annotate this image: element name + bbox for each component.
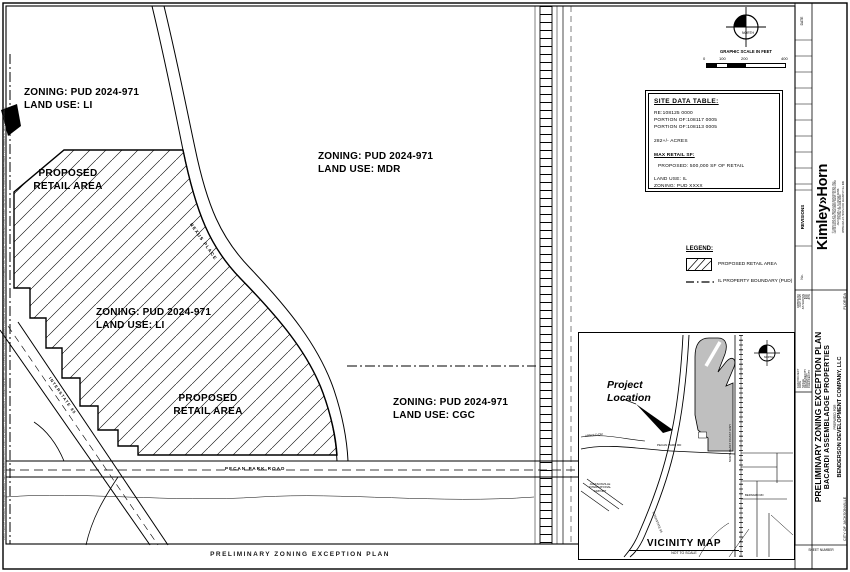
landuse-line: LAND USE: LI xyxy=(96,319,211,332)
max-retail-heading: MAX RETAIL SF: xyxy=(654,152,774,159)
sheet-number-label: SHEET NUMBER xyxy=(808,548,833,552)
project-location-line1: Project xyxy=(607,379,651,392)
city-label: CITY OF JACKSONVILLE xyxy=(843,497,847,541)
revisions-date-header: DATE xyxy=(800,6,804,36)
landuse-line: LAND USE: LI xyxy=(24,99,139,112)
zoning-label-li: ZONING: PUD 2024-971 LAND USE: LI xyxy=(96,306,211,332)
state-label: FLORIDA xyxy=(843,293,847,309)
retail-area-label-lower: PROPOSED RETAIL AREA xyxy=(158,392,258,418)
sheet-title: PRELIMINARY ZONING EXCEPTION PLAN xyxy=(813,293,823,541)
parcel-id: PORTION OF:108117 0005 xyxy=(654,117,774,124)
scale-tick-200: 200 xyxy=(741,56,748,61)
vicinity-road-bernard: BERNARD RD xyxy=(745,493,764,497)
project-location-line2: Location xyxy=(607,392,651,405)
legend-retail-label: PROPOSED RETAIL AREA xyxy=(718,262,777,267)
site-data-title: SITE DATA TABLE: xyxy=(654,98,774,105)
vicinity-linework: NORTH xyxy=(579,333,793,558)
bottom-sheet-title: PRELIMINARY ZONING EXCEPTION PLAN xyxy=(150,551,450,558)
zoning-label-mdr: ZONING: PUD 2024-971 LAND USE: MDR xyxy=(318,150,433,176)
legend-title: LEGEND: xyxy=(686,246,794,252)
project-name: BACARDI ASSEMBLADGE PROPERTIES xyxy=(824,293,831,541)
north-arrow-label: NORTH xyxy=(742,31,755,35)
vicinity-road-pecan: PECAN PARK RD xyxy=(657,443,681,447)
zoning-plan-sheet: NORTH ZONING: PUD 2024-971 LAND USE: LI … xyxy=(0,0,850,572)
vicinity-map: NORTH Project Location ARNOLD DR PECAN P… xyxy=(578,332,795,560)
table-zoning: ZONING: PUD XXXX xyxy=(654,183,774,190)
vicinity-subtitle: NOT TO SCALE xyxy=(629,551,739,555)
parcel-id: PORTION OF:108113 0005 xyxy=(654,124,774,131)
legend-boundary-swatch xyxy=(686,280,716,284)
retail-line1: PROPOSED xyxy=(18,167,118,180)
revisions-header: REVISIONS xyxy=(800,193,805,241)
acreage: 282+/- ACRES xyxy=(654,138,774,145)
retail-area-label-upper: PROPOSED RETAIL AREA xyxy=(18,167,118,193)
zoning-line: ZONING: PUD 2024-971 xyxy=(318,150,433,163)
zoning-line: ZONING: PUD 2024-971 xyxy=(96,306,211,319)
road-label-pecan-park: PECAN PARK ROAD xyxy=(225,466,285,471)
legend: LEGEND: PROPOSED RETAIL AREA IL PROPERTY… xyxy=(686,246,794,284)
vicinity-road-coast-hwy: NORTH EAST COAST HWY xyxy=(728,395,732,491)
legend-hatch-swatch xyxy=(686,258,712,271)
vicinity-title: VICINITY MAP xyxy=(629,538,739,551)
landuse-line: LAND USE: CGC xyxy=(393,409,508,422)
scale-tick-400: 400 xyxy=(781,56,788,61)
max-retail-value: PROPOSED: 500,000 SF OF RETAIL xyxy=(654,163,774,170)
site-data-table: SITE DATA TABLE: RE:108125 0000 PORTION … xyxy=(645,90,783,192)
retail-line2: RETAIL AREA xyxy=(158,405,258,418)
plot-stamp: PLOTTED BY LARSEN, BENJAMIN SHEET SET: Z… xyxy=(2,60,6,540)
firm-info-block: © 2025 KIMLEY-HORN AND ASSOCIATES, INC. … xyxy=(833,142,845,272)
table-land-use: LAND USE: IL xyxy=(654,176,774,183)
info-value: JPW xyxy=(808,294,810,300)
project-info-block: KHA PROJECT048581210 DATEJULY 2025 SCALE… xyxy=(797,294,811,388)
project-location-callout: Project Location xyxy=(607,379,651,405)
retail-line1: PROPOSED xyxy=(158,392,258,405)
zoning-label-cgc: ZONING: PUD 2024-971 LAND USE: CGC xyxy=(393,396,508,422)
scale-tick-0: 0 xyxy=(703,56,705,61)
revisions-number-header: No. xyxy=(800,266,804,288)
sheet-number-box: SHEET NUMBER xyxy=(795,545,847,569)
vicinity-north-arrow-icon: NORTH xyxy=(754,340,780,366)
city-state-line: CITY OF JACKSONVILLE FLORIDA xyxy=(843,293,847,541)
parcel-id: RE:108125 0000 xyxy=(654,110,774,117)
vicinity-airport-label: JACKSONVILLE INTERNATIONAL AIRPORT xyxy=(583,483,617,493)
landuse-line: LAND USE: MDR xyxy=(318,163,433,176)
zoning-line: ZONING: PUD 2024-971 xyxy=(24,86,139,99)
kimley-horn-logo: Kimley»Horn xyxy=(815,146,831,268)
zoning-line: ZONING: PUD 2024-971 xyxy=(393,396,508,409)
info-label: CHECKED BY xyxy=(808,370,810,388)
vicinity-north-label: NORTH xyxy=(764,355,773,359)
retail-line2: RETAIL AREA xyxy=(18,180,118,193)
firm-info-line: WWW.KIMLEY-HORN.COM REGISTRY No. 696 xyxy=(843,142,845,272)
scale-tick-100: 100 xyxy=(719,56,726,61)
zoning-label-nw: ZONING: PUD 2024-971 LAND USE: LI xyxy=(24,86,139,112)
legend-boundary-label: IL PROPERTY BOUNDARY (PUD) xyxy=(718,279,792,284)
north-arrow-icon: NORTH xyxy=(726,7,766,47)
graphic-scale-title: GRAPHIC SCALE IN FEET xyxy=(702,49,790,54)
graphic-scale-bar xyxy=(706,63,786,68)
